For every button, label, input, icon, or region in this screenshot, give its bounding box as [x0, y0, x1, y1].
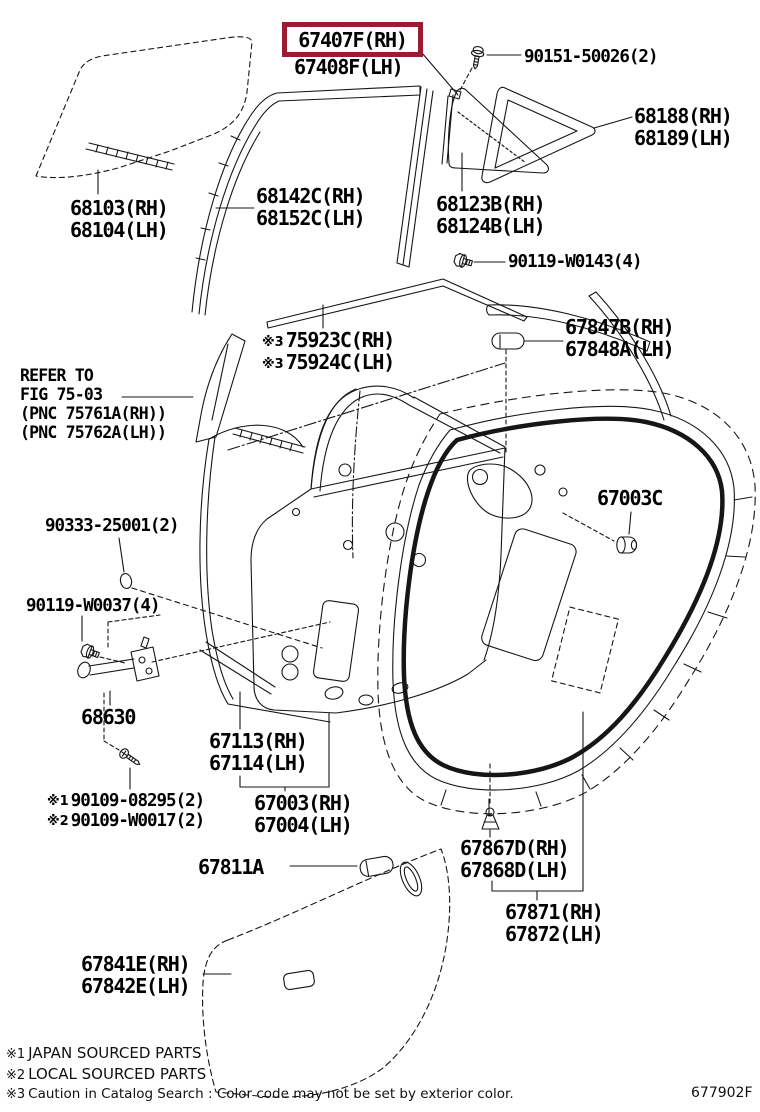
clip-icon-90333[interactable]	[119, 573, 133, 590]
part-label-90109[interactable]: ※190109-08295(2) ※290109-W0017(2)	[47, 791, 204, 831]
part-label-90333[interactable]: 90333-25001(2)	[45, 516, 179, 536]
part-label-67407f: 67407F(RH)	[298, 29, 406, 51]
part-label-68123[interactable]: 68123B(RH) 68124B(LH)	[436, 193, 544, 237]
clip-icon-67847[interactable]	[492, 333, 524, 349]
part-quarter-weatherstrip[interactable]	[482, 87, 595, 182]
footnote-1: ※1JAPAN SOURCED PARTS	[6, 1044, 202, 1062]
part-label-67871[interactable]: 67871(RH) 67872(LH)	[505, 901, 603, 945]
part-door-glass[interactable]	[36, 37, 252, 178]
part-label-68630[interactable]: 68630	[81, 706, 135, 728]
bolt-icon-w0037[interactable]	[80, 643, 101, 661]
figure-number: 677902F	[691, 1085, 753, 1101]
part-label-67811[interactable]: 67811A	[198, 856, 263, 878]
bolt-icon-w0143[interactable]	[453, 253, 473, 270]
check-dash-box	[108, 615, 160, 647]
clip-icon-67867[interactable]	[482, 808, 499, 829]
part-label-w0037[interactable]: 90119-W0037(4)	[26, 596, 160, 616]
part-label-68188[interactable]: 68188(RH) 68189(LH)	[634, 105, 732, 149]
part-label-w0143[interactable]: 90119-W0143(4)	[508, 252, 642, 272]
part-label-90151[interactable]: 90151-50026(2)	[524, 47, 658, 67]
part-label-67003c[interactable]: 67003C	[597, 487, 662, 509]
grommet-icon-67003c[interactable]	[617, 537, 637, 553]
part-door-shell[interactable]	[378, 292, 755, 815]
part-inner-panel[interactable]	[251, 386, 618, 713]
highlight-box[interactable]: 67407F(RH)	[282, 22, 423, 57]
screw-icon-90151[interactable]	[469, 46, 485, 70]
footnote-3: ※3Caution in Catalog Search : Color code…	[6, 1086, 514, 1102]
diagram-line-art	[0, 0, 760, 1112]
part-label-67847[interactable]: 67847B(RH) 67848A(LH)	[565, 316, 673, 360]
part-label-67841[interactable]: 67841E(RH) 67842E(LH)	[81, 953, 189, 997]
part-roof-molding[interactable]	[267, 279, 527, 328]
refer-note: REFER TO FIG 75-03 (PNC 75761A(RH)) (PNC…	[20, 366, 166, 442]
clip-icon-67811[interactable]	[359, 855, 394, 877]
leader-w0037-dash	[100, 622, 330, 663]
parts-diagram-page: 67407F(RH) 67408F(LH) 90151-50026(2) 681…	[0, 0, 760, 1112]
part-trim-panel[interactable]	[203, 849, 450, 1097]
part-label-75923[interactable]: ※375923C(RH) ※375924C(LH)	[262, 329, 394, 373]
part-label-67003[interactable]: 67003(RH) 67004(LH)	[254, 792, 352, 836]
part-label-68103[interactable]: 68103(RH) 68104(LH)	[70, 197, 168, 241]
part-label-67867[interactable]: 67867D(RH) 67868D(LH)	[460, 837, 568, 881]
leader-68188	[594, 117, 632, 128]
leader-67003c	[629, 512, 631, 534]
part-belt-sash[interactable]	[196, 334, 245, 442]
leader-90333-dash	[132, 588, 322, 648]
footnote-2: ※2LOCAL SOURCED PARTS	[6, 1065, 206, 1083]
note3-mark: ※3	[262, 335, 284, 350]
screw-icon-90109[interactable]	[118, 747, 143, 768]
door-check-icon[interactable]	[76, 637, 159, 681]
part-label-67113[interactable]: 67113(RH) 67114(LH)	[209, 730, 307, 774]
part-label-68142[interactable]: 68142C(RH) 68152C(LH)	[256, 185, 364, 229]
part-label-67408f[interactable]: 67408F(LH)	[294, 56, 402, 78]
leader-90333	[119, 538, 124, 572]
part-outer-panel[interactable]	[200, 425, 330, 722]
note3-mark: ※3	[262, 357, 284, 372]
leader-67003c-dash	[563, 513, 614, 541]
part-door-weatherstrip[interactable]	[404, 419, 723, 775]
